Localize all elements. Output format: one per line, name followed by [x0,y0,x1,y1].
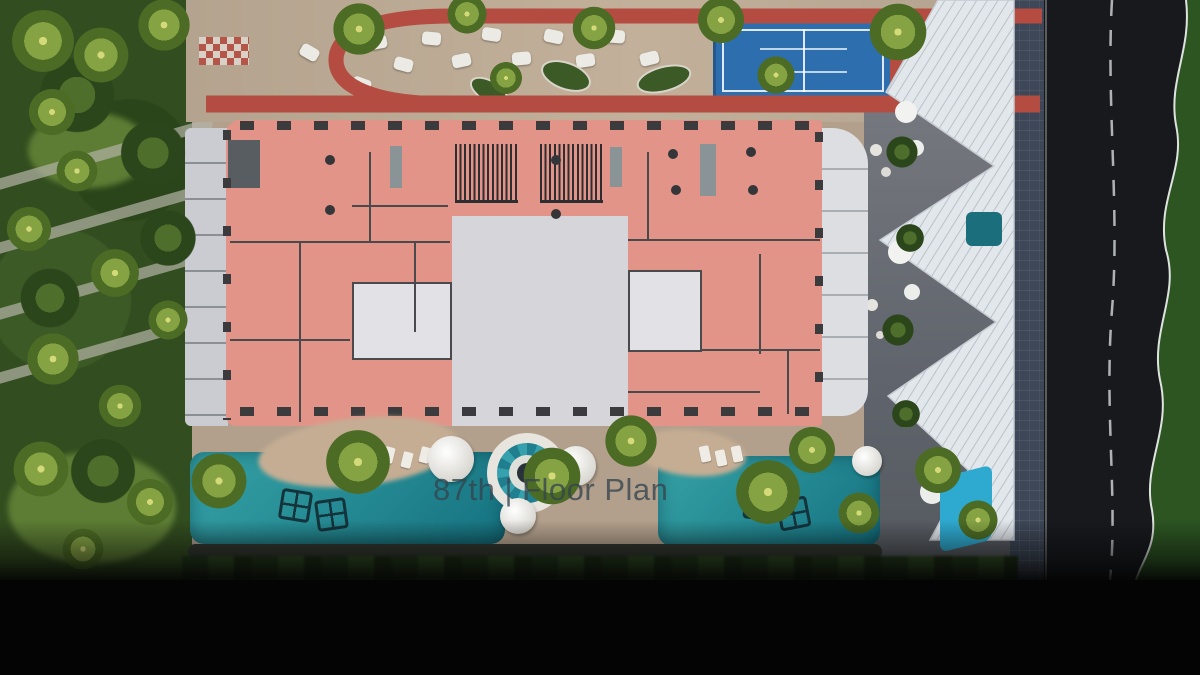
logo-pool-float [278,488,313,523]
palm-tree [322,426,394,498]
palm-tree [570,4,618,52]
tree [894,222,926,254]
tree [116,116,190,190]
floorplan-slide: 87th | Floor Plan 87th Floorplan [0,0,1200,675]
tree [136,206,200,270]
palm-tree [866,0,930,64]
tree [890,398,922,430]
palm-tree [602,412,660,470]
floorplan-watermark: 87th | Floor Plan [433,472,668,508]
palm-tree [54,148,100,194]
palm-tree [4,204,54,254]
palm-tree [24,330,82,388]
palm-tree [88,246,142,300]
palm-tree [10,438,72,500]
tower-floorplan [185,120,875,430]
road-markings [1046,0,1115,580]
palm-tree [912,444,964,496]
tent-canopy [904,284,920,300]
aerial-render: 87th | Floor Plan [0,0,1200,580]
palm-tree [755,54,797,96]
tree [16,264,84,332]
palm-tree [330,0,388,58]
palm-tree [96,382,144,430]
tree [884,134,920,170]
palm-tree [8,6,78,76]
palm-tree [488,60,524,96]
footer-bar: 87th Floorplan [0,580,1200,675]
boulder [881,167,891,177]
roadside-grass [1136,0,1200,580]
palm-tree [70,24,132,86]
interior-walls [185,120,875,430]
palm-tree [146,298,190,342]
pool-umbrella [852,446,882,476]
palm-tree [26,86,78,138]
tent-canopy [895,101,917,123]
bottom-fade [0,520,1200,580]
palm-tree [786,424,838,476]
palm-tree [188,450,250,512]
tree [880,312,916,348]
